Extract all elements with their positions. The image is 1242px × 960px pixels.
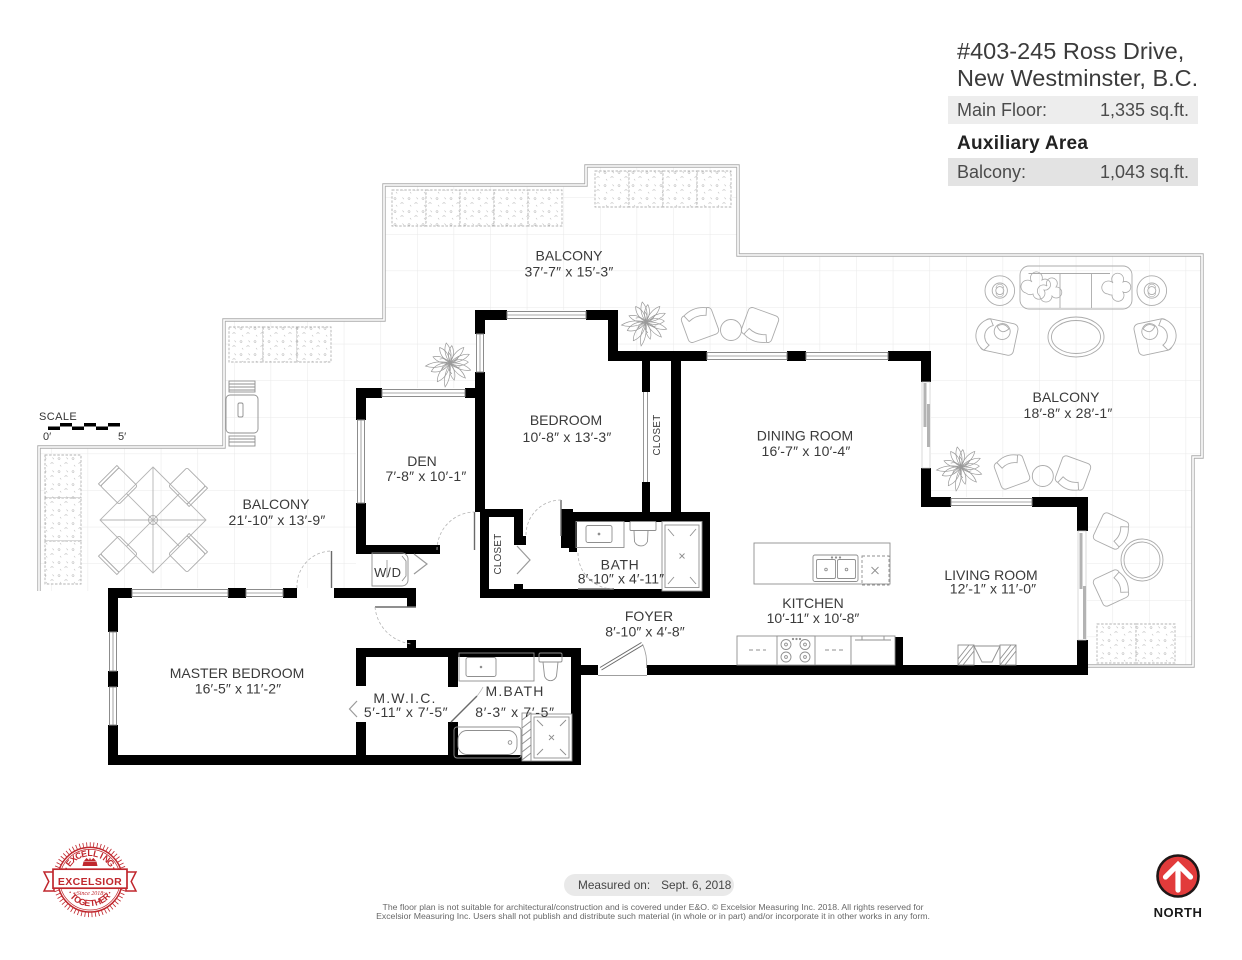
- svg-text:DINING ROOM: DINING ROOM: [757, 428, 853, 444]
- svg-text:CLOSET: CLOSET: [652, 415, 663, 456]
- svg-text:8′-10″ x 4′-11″: 8′-10″ x 4′-11″: [578, 571, 664, 587]
- svg-text:~Since 2018~: ~Since 2018~: [74, 891, 108, 897]
- svg-text:0′: 0′: [43, 431, 51, 443]
- svg-text:MASTER BEDROOM: MASTER BEDROOM: [170, 665, 305, 681]
- svg-text:W/D: W/D: [374, 565, 402, 580]
- svg-text:M.BATH: M.BATH: [485, 683, 544, 699]
- svg-text:18′-8″ x 28′-1″: 18′-8″ x 28′-1″: [1024, 405, 1113, 421]
- svg-text:16′-5″ x 11′-2″: 16′-5″ x 11′-2″: [195, 681, 281, 697]
- svg-text:BALCONY: BALCONY: [243, 496, 311, 512]
- svg-text:16′-7″ x 10′-4″: 16′-7″ x 10′-4″: [762, 443, 851, 459]
- svg-text:5′-11″ x 7′-5″: 5′-11″ x 7′-5″: [364, 704, 448, 720]
- svg-text:KITCHEN: KITCHEN: [782, 595, 843, 611]
- svg-text:SCALE: SCALE: [39, 411, 77, 423]
- svg-text:NORTH: NORTH: [1154, 905, 1203, 920]
- svg-text:21′-10″ x 13′-9″: 21′-10″ x 13′-9″: [229, 512, 326, 528]
- svg-text:DEN: DEN: [407, 453, 437, 469]
- svg-text:5′: 5′: [118, 431, 126, 443]
- svg-text:10′-8″ x 13′-3″: 10′-8″ x 13′-3″: [523, 429, 612, 445]
- svg-text:8′-3″ x 7′-5″: 8′-3″ x 7′-5″: [475, 704, 555, 720]
- svg-text:12′-1″ x 11′-0″: 12′-1″ x 11′-0″: [950, 581, 1036, 597]
- svg-text:10′-11″ x 10′-8″: 10′-11″ x 10′-8″: [767, 610, 860, 626]
- svg-text:FOYER: FOYER: [625, 608, 673, 624]
- svg-text:8′-10″ x 4′-8″: 8′-10″ x 4′-8″: [605, 624, 685, 640]
- svg-text:BALCONY: BALCONY: [536, 248, 604, 264]
- svg-text:EXCELSIOR: EXCELSIOR: [58, 876, 122, 888]
- svg-text:BALCONY: BALCONY: [1033, 389, 1101, 405]
- svg-text:BEDROOM: BEDROOM: [530, 412, 602, 428]
- svg-text:7′-8″ x 10′-1″: 7′-8″ x 10′-1″: [386, 468, 467, 484]
- svg-text:CLOSET: CLOSET: [493, 534, 504, 575]
- svg-text:37′-7″ x 15′-3″: 37′-7″ x 15′-3″: [525, 264, 614, 280]
